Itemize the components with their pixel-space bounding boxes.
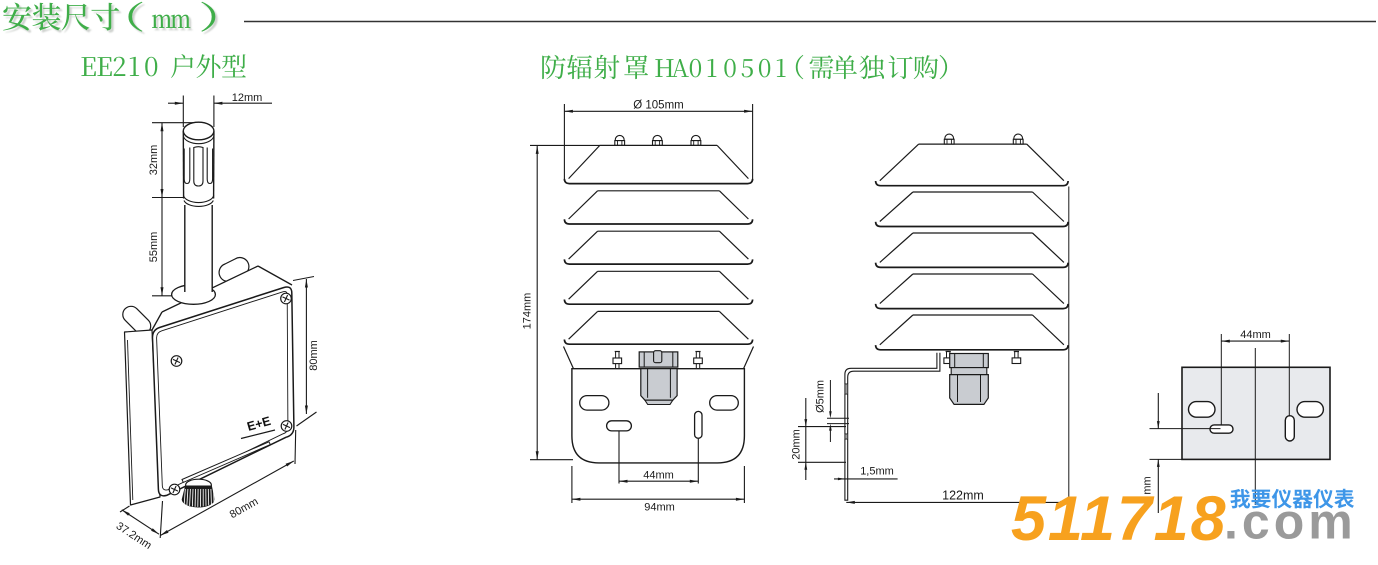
svg-text:80mm: 80mm [308,340,320,371]
svg-text:1,5mm: 1,5mm [860,466,894,478]
svg-text:Ø 105mm: Ø 105mm [633,100,684,112]
svg-text:174mm: 174mm [522,293,534,330]
svg-text:44mm: 44mm [643,470,674,482]
svg-text:Ø5mm: Ø5mm [815,380,827,413]
svg-text:94mm: 94mm [644,502,675,514]
svg-text:32mm: 32mm [148,145,160,176]
svg-text:20mm: 20mm [791,429,803,460]
svg-text:122mm: 122mm [942,489,984,503]
svg-text:12mm: 12mm [232,92,263,104]
svg-text:44mm: 44mm [1240,329,1271,341]
svg-text:55mm: 55mm [148,232,160,263]
svg-text:511718: 511718 [1011,484,1227,554]
